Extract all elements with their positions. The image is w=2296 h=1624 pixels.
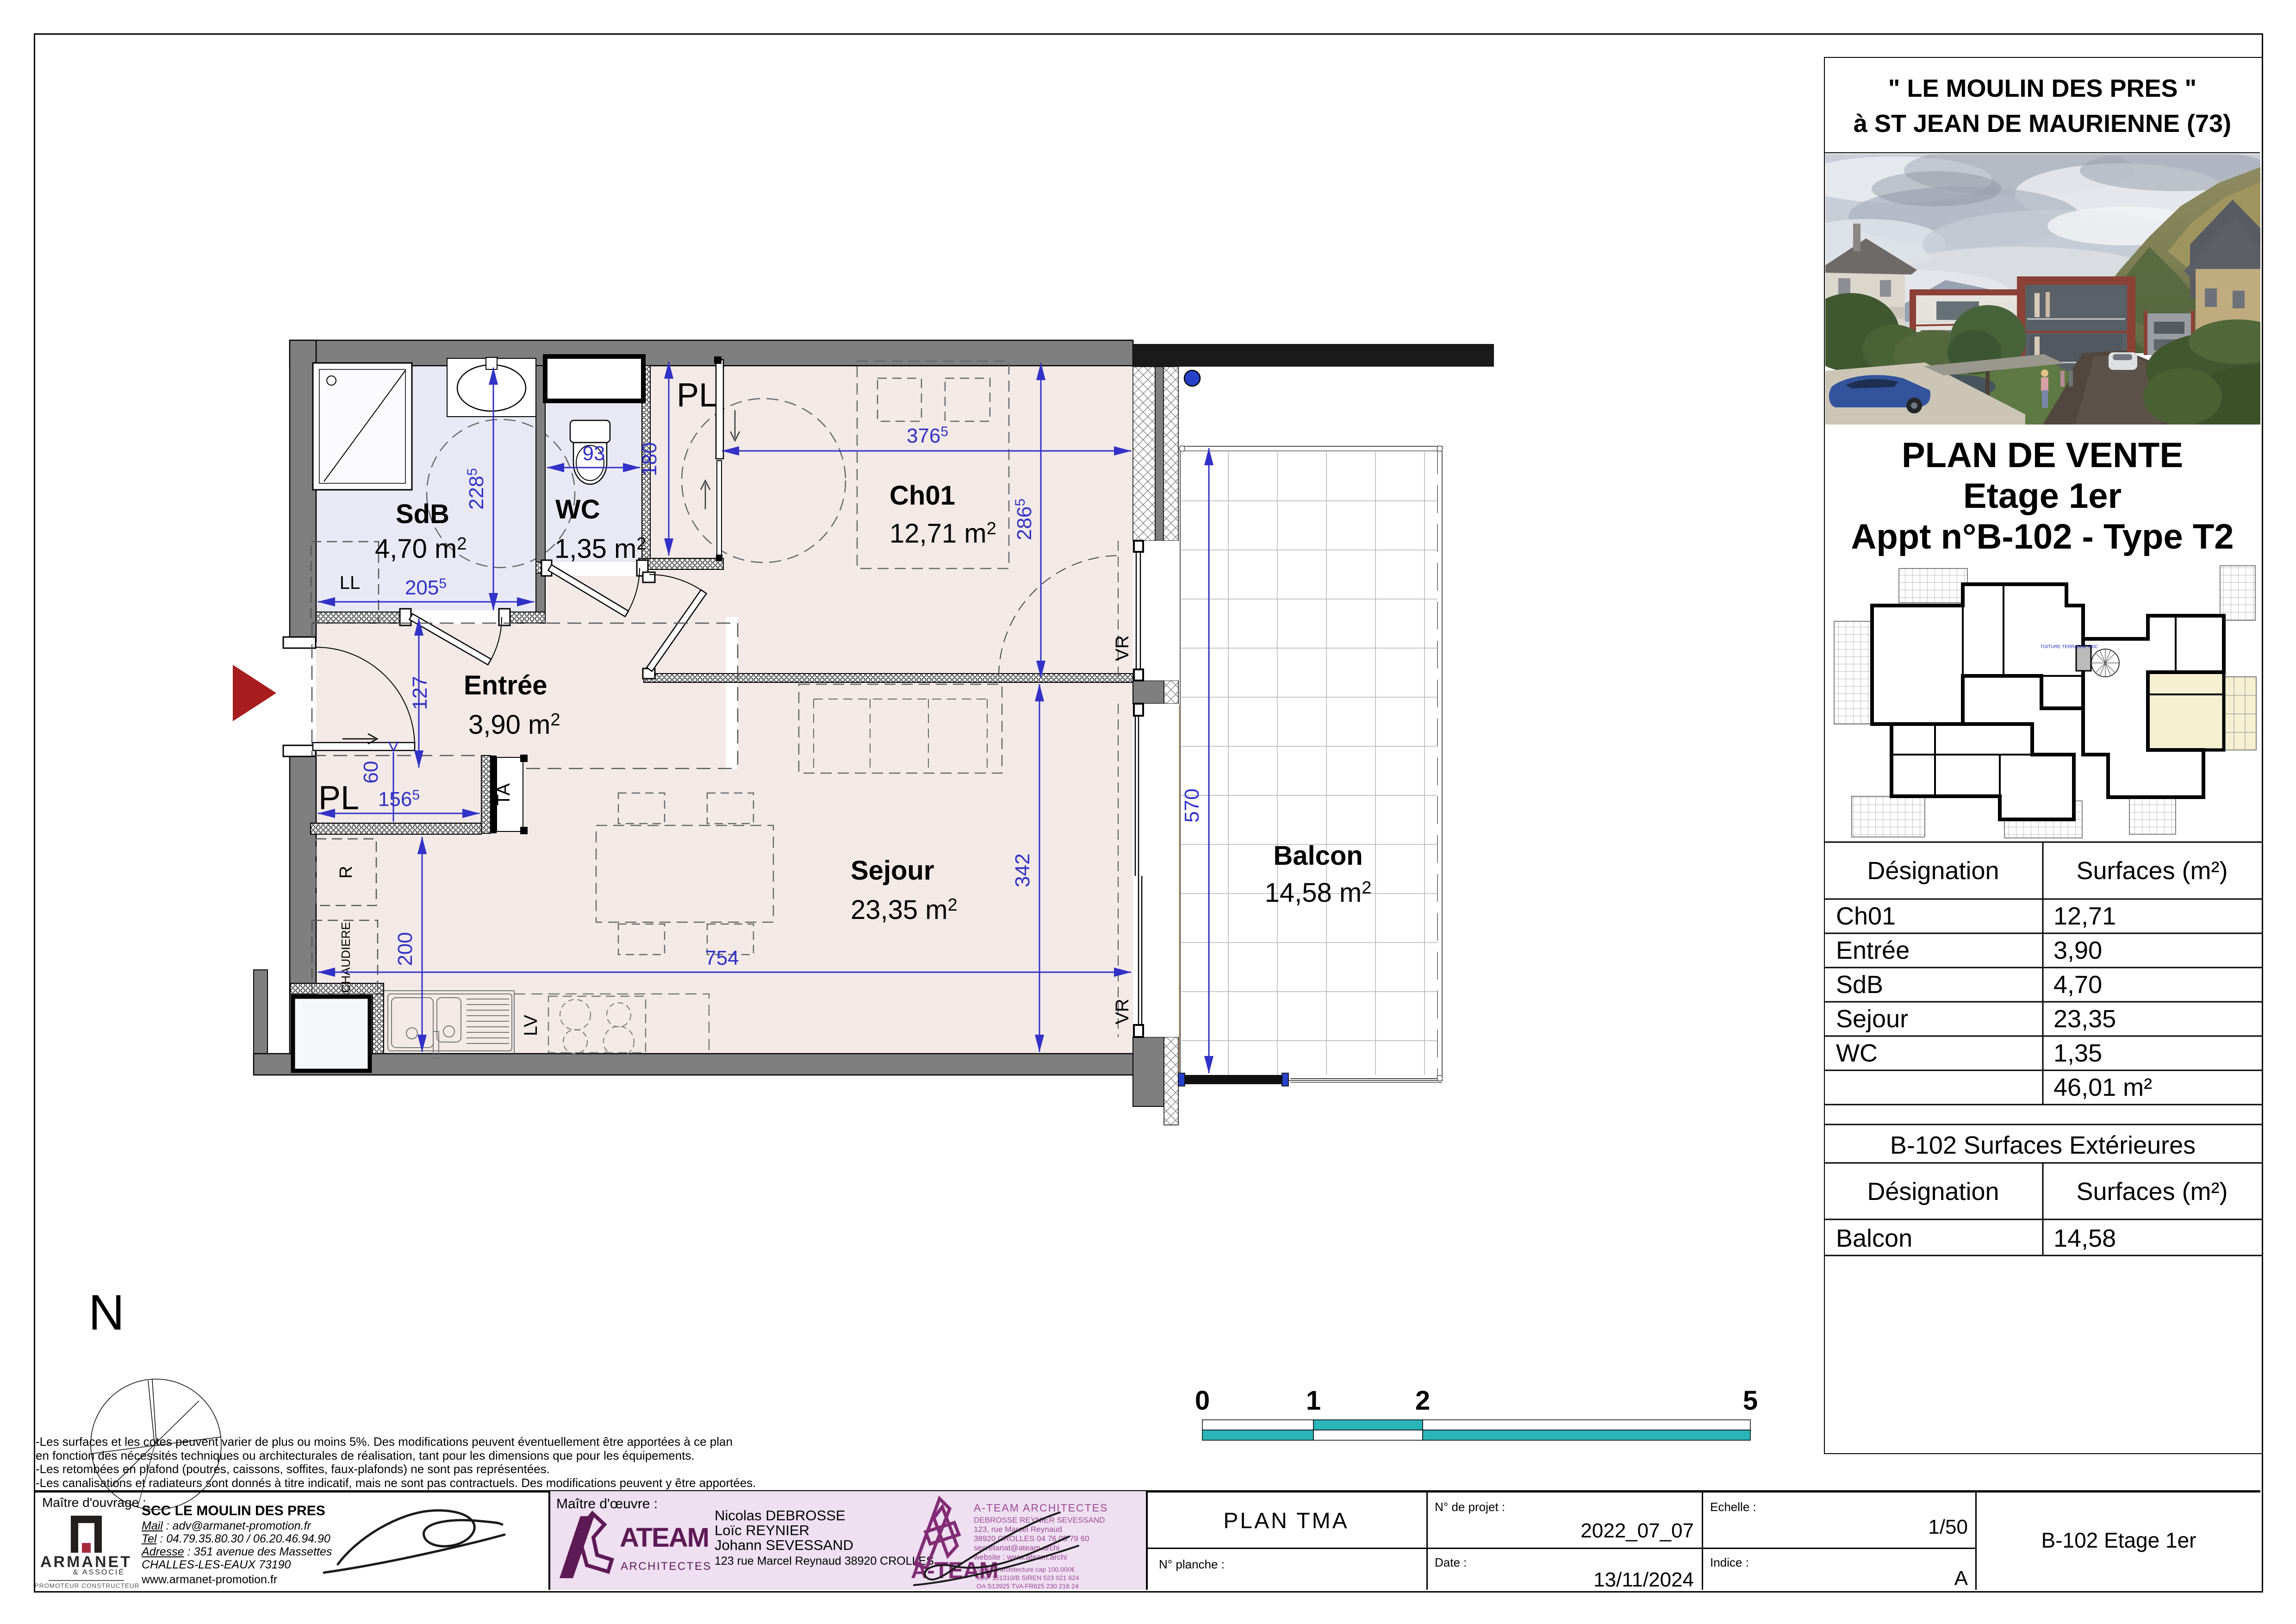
svg-text:OA S13925 TVA FR625 230 216 24: OA S13925 TVA FR625 230 216 24: [977, 1582, 1079, 1590]
svg-text:VR: VR: [1112, 999, 1132, 1024]
svg-text:Balcon: Balcon: [1836, 1224, 1912, 1252]
svg-text:R: R: [336, 866, 356, 878]
svg-text:TA: TA: [493, 783, 514, 806]
svg-text:PL: PL: [677, 377, 717, 414]
svg-text:200: 200: [394, 932, 417, 966]
svg-text:60: 60: [360, 761, 382, 784]
svg-text:Désignation: Désignation: [1867, 857, 1999, 885]
svg-text:WC: WC: [555, 494, 600, 525]
svg-text:Surfaces (m²): Surfaces (m²): [2076, 857, 2228, 885]
svg-text:Sejour: Sejour: [1836, 1005, 1908, 1033]
svg-text:ARCHITECTES: ARCHITECTES: [621, 1560, 712, 1573]
svg-text:1,35 m2: 1,35 m2: [554, 534, 646, 564]
svg-text:1,35: 1,35: [2053, 1039, 2102, 1067]
svg-text:ATEAM: ATEAM: [620, 1523, 709, 1553]
svg-text:12,71: 12,71: [2053, 902, 2116, 930]
svg-text:4,70 m2: 4,70 m2: [375, 534, 467, 564]
svg-text:Entrée: Entrée: [1836, 937, 1910, 964]
svg-text:A-TEAM ARCHITECTES: A-TEAM ARCHITECTES: [974, 1502, 1108, 1514]
svg-text:Surfaces (m²): Surfaces (m²): [2076, 1178, 2228, 1206]
svg-text:N: N: [88, 1284, 124, 1340]
svg-text:MAF 151310/B SIREN 523 021 624: MAF 151310/B SIREN 523 021 624: [977, 1574, 1079, 1581]
svg-text:3,90: 3,90: [2053, 937, 2102, 964]
svg-text:570: 570: [1181, 788, 1203, 822]
svg-text:CHAUDIERE: CHAUDIERE: [339, 922, 353, 993]
svg-text:LV: LV: [521, 1015, 541, 1036]
svg-text:Ch01: Ch01: [1836, 902, 1896, 930]
svg-text:SdB: SdB: [1836, 971, 1883, 999]
svg-text:LL: LL: [340, 573, 361, 593]
svg-text:Sejour: Sejour: [851, 856, 934, 886]
svg-text:Entrée: Entrée: [464, 670, 548, 700]
svg-text:0: 0: [1195, 1386, 1210, 1416]
svg-text:1: 1: [1306, 1386, 1321, 1416]
svg-text:180: 180: [638, 442, 661, 476]
svg-text:23,35: 23,35: [2053, 1005, 2116, 1033]
svg-text:14,58 m2: 14,58 m2: [1265, 878, 1372, 908]
svg-text:12,71 m2: 12,71 m2: [890, 518, 996, 549]
svg-text:SdB: SdB: [396, 499, 449, 529]
svg-text:2: 2: [1415, 1386, 1430, 1416]
svg-text:Ch01: Ch01: [890, 481, 955, 511]
svg-text:23,35 m2: 23,35 m2: [851, 895, 958, 925]
svg-text:93: 93: [583, 442, 605, 465]
svg-text:5: 5: [1743, 1386, 1758, 1416]
svg-text:3,90 m2: 3,90 m2: [468, 710, 560, 740]
svg-text:PROMOTEUR CONSTRUCTEUR: PROMOTEUR CONSTRUCTEUR: [35, 1582, 140, 1589]
svg-text:Balcon: Balcon: [1273, 841, 1363, 871]
svg-text:PL: PL: [318, 780, 359, 817]
svg-text:& ASSOCIÉ: & ASSOCIÉ: [73, 1568, 125, 1576]
svg-text:VR: VR: [1112, 635, 1132, 661]
svg-text:Désignation: Désignation: [1867, 1178, 1999, 1206]
svg-text:123, rue Marcel Reynaud: 123, rue Marcel Reynaud: [974, 1525, 1062, 1534]
svg-text:TOITURE TERRASSE RDC: TOITURE TERRASSE RDC: [2041, 644, 2098, 650]
svg-text:B-102 Surfaces Extérieures: B-102 Surfaces Extérieures: [1890, 1131, 2196, 1159]
svg-text:WC: WC: [1836, 1039, 1878, 1067]
svg-text:38920 CROLLES 04 76 08 79 60: 38920 CROLLES 04 76 08 79 60: [974, 1534, 1089, 1543]
svg-text:754: 754: [705, 947, 739, 969]
svg-text:342: 342: [1011, 853, 1034, 887]
svg-text:127: 127: [409, 676, 431, 710]
svg-text:4,70: 4,70: [2053, 971, 2102, 999]
svg-text:14,58: 14,58: [2053, 1224, 2116, 1252]
svg-text:46,01 m²: 46,01 m²: [2053, 1074, 2152, 1101]
